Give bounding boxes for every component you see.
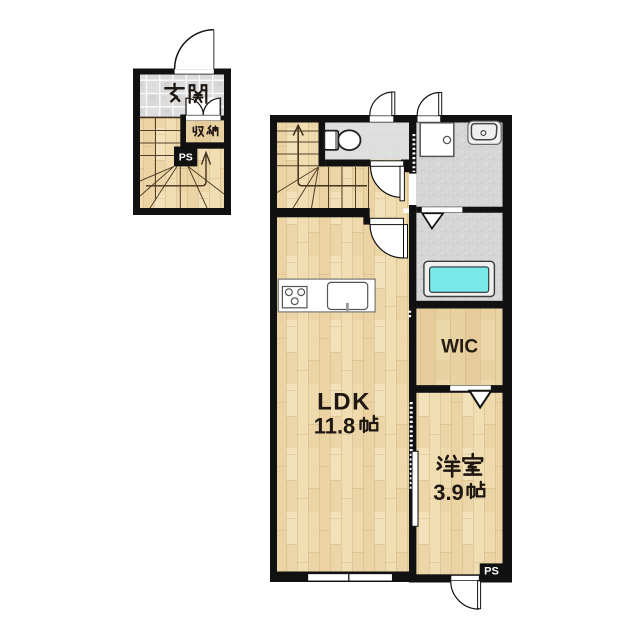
svg-text:PS: PS <box>179 151 193 163</box>
svg-text:11.8: 11.8 <box>314 414 356 439</box>
svg-text:3.9: 3.9 <box>433 480 464 505</box>
svg-text:WIC: WIC <box>441 337 478 358</box>
svg-text:LDK: LDK <box>317 389 371 416</box>
svg-text:PS: PS <box>484 565 499 577</box>
